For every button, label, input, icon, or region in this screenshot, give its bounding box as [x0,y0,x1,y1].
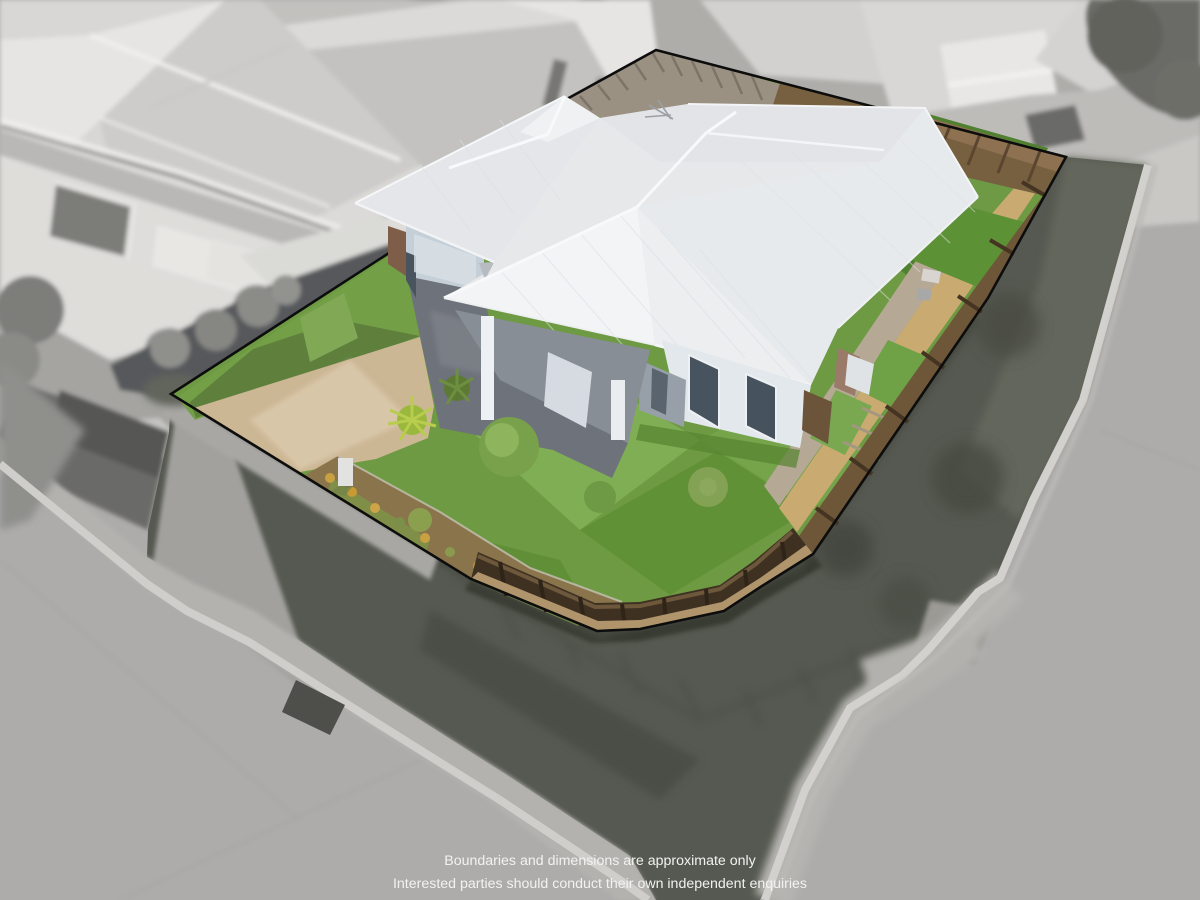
svg-text:Boundaries and dimensions are: Boundaries and dimensions are approximat… [444,853,756,869]
svg-text:Interested parties should cond: Interested parties should conduct their … [393,876,807,892]
